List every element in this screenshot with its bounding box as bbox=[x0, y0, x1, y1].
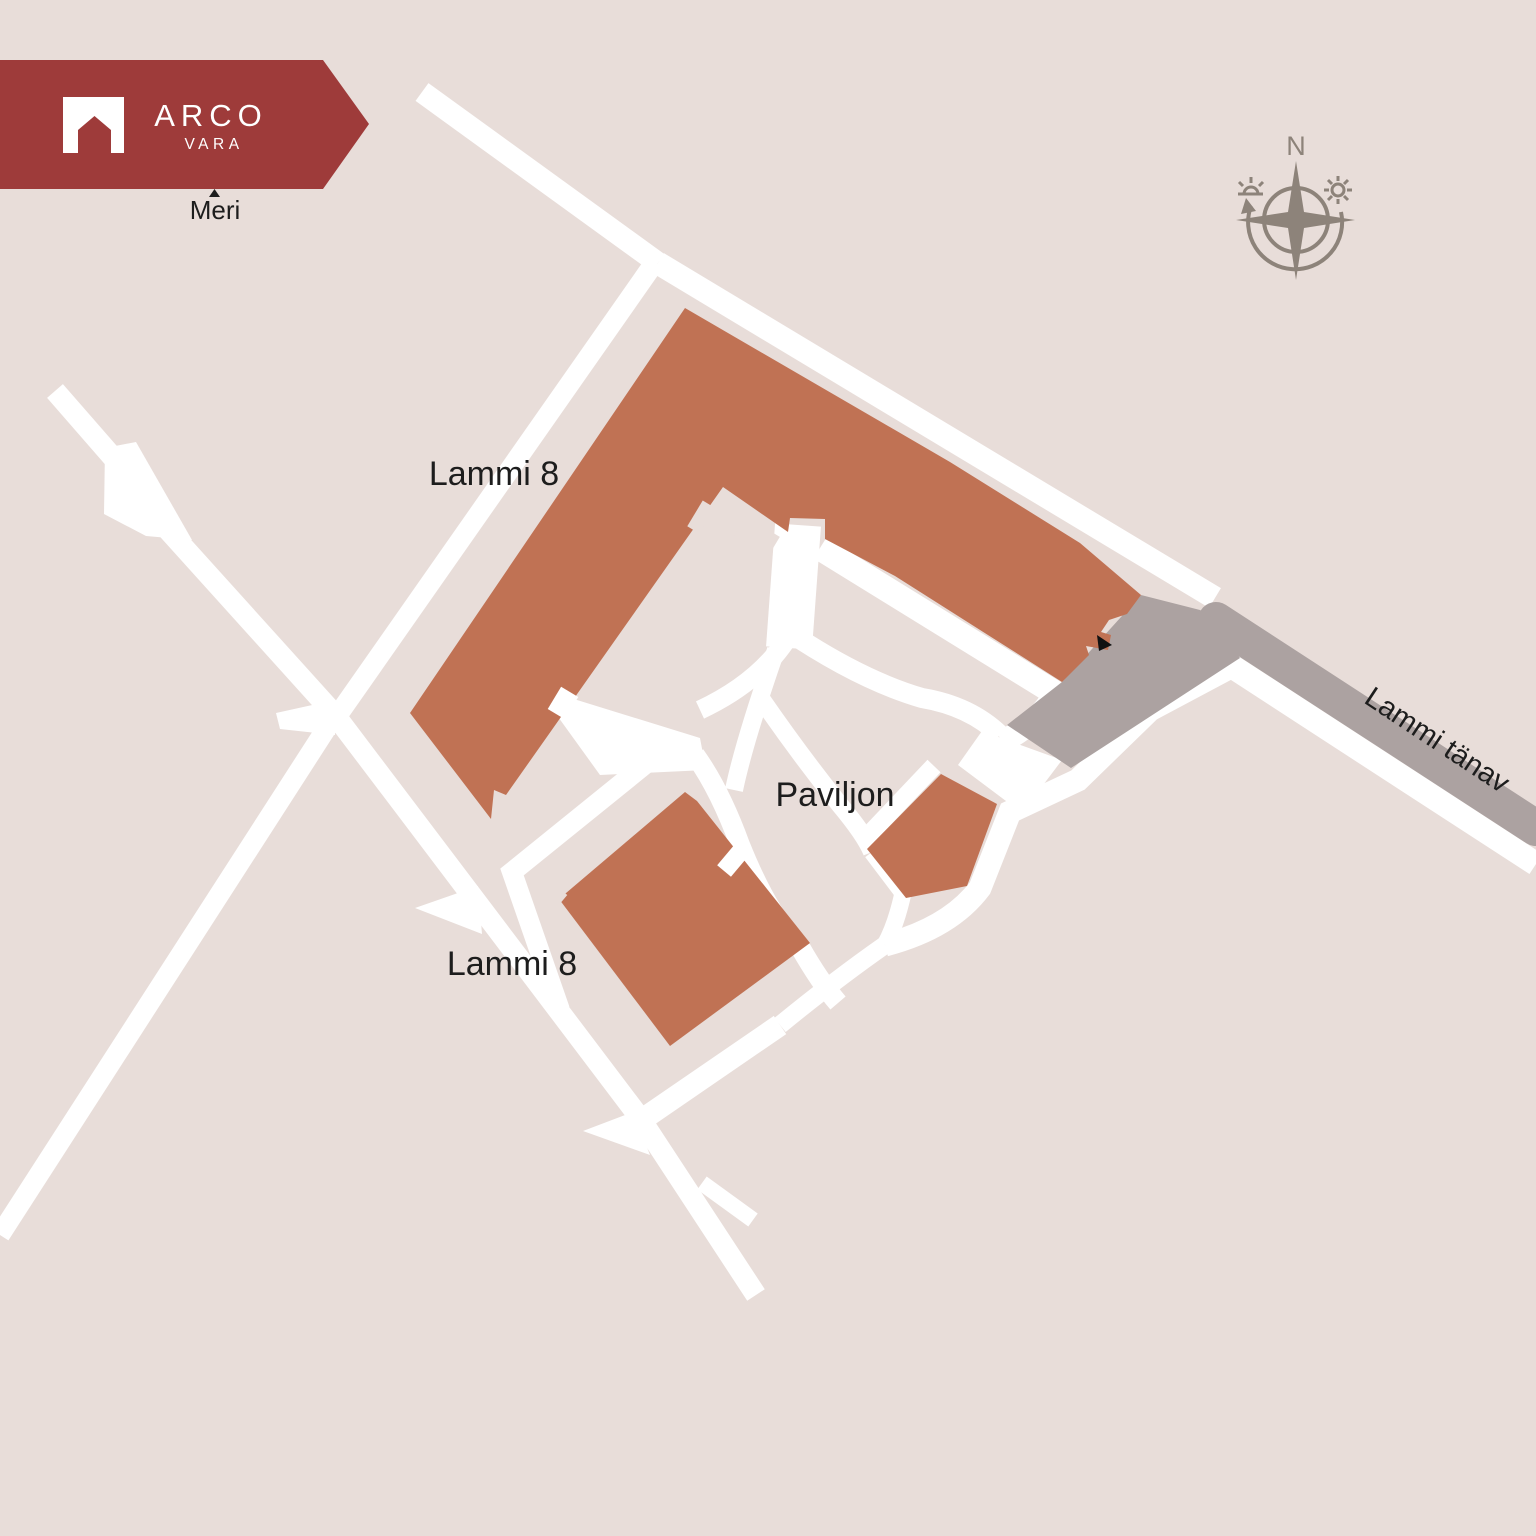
svg-text:Meri: Meri bbox=[190, 195, 241, 225]
svg-text:Lammi 8: Lammi 8 bbox=[447, 945, 577, 983]
svg-text:N: N bbox=[1286, 131, 1306, 161]
svg-text:Lammi 8: Lammi 8 bbox=[429, 455, 559, 493]
svg-text:VARA: VARA bbox=[184, 136, 243, 153]
svg-text:ARCO: ARCO bbox=[154, 98, 268, 133]
svg-text:Paviljon: Paviljon bbox=[775, 776, 894, 814]
